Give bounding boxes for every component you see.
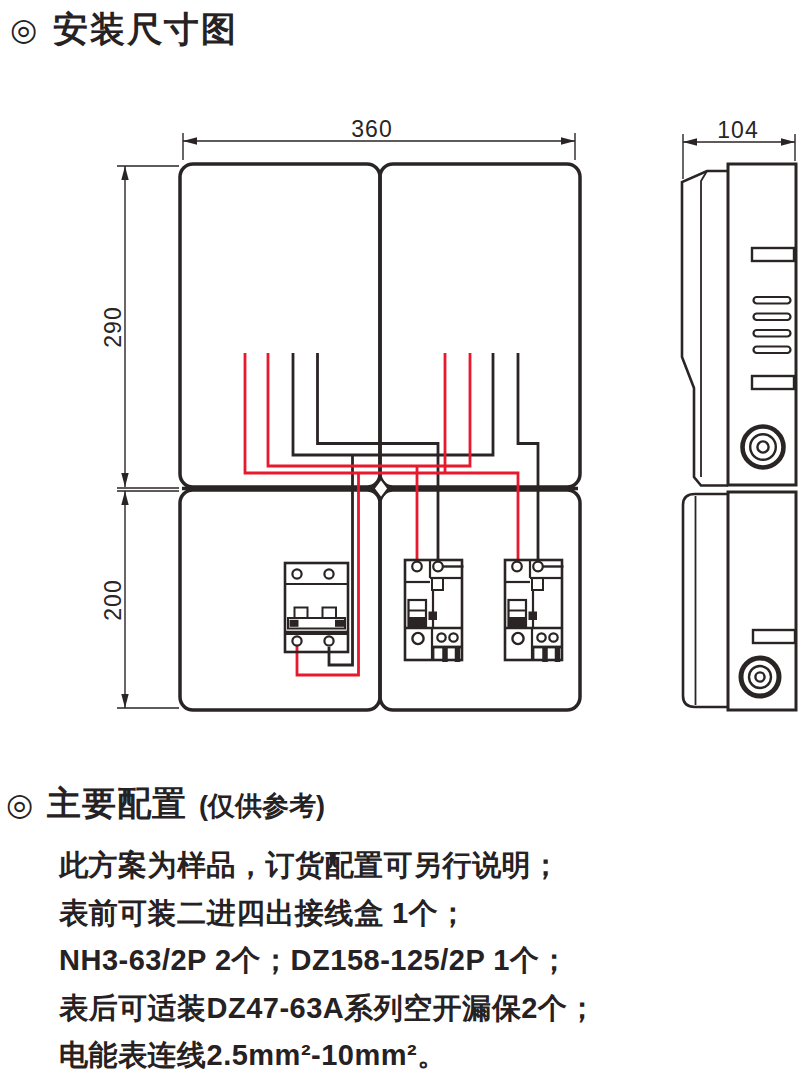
bullseye-icon: ◎ <box>6 789 33 820</box>
dim-upper-height-label: 290 <box>100 306 126 347</box>
config-section-title: 主要配置 <box>47 781 187 827</box>
rcbo-breaker-1 <box>405 560 464 662</box>
rcbo-breaker-2 <box>505 560 564 662</box>
dim-lower-height-label: 200 <box>100 579 126 620</box>
config-line: 此方案为样品，订货配置可另行说明； <box>59 842 779 890</box>
config-line: 表后可适装DZ47-63A系列空开漏保2个； <box>59 985 779 1033</box>
config-section-header: ◎ 主要配置 (仅供参考) <box>6 781 325 827</box>
dim-width-label: 360 <box>351 116 392 142</box>
config-text-block: 此方案为样品，订货配置可另行说明； 表前可装二进四出接线盒 1个； NH3-63… <box>59 842 779 1075</box>
main-breaker-2p <box>285 563 348 652</box>
config-line: NH3-63/2P 2个；DZ158-125/2P 1个； <box>59 937 779 985</box>
dim-depth-label: 104 <box>717 117 758 143</box>
dimension-labels: 360 104 290 200 <box>100 116 759 621</box>
installation-dimension-diagram: 360 104 290 200 <box>0 0 800 765</box>
side-view-enclosure <box>682 164 796 710</box>
config-section-note: (仅供参考) <box>199 788 325 824</box>
config-line: 表前可装二进四出接线盒 1个； <box>59 890 779 938</box>
config-line: 电能表连线2.5mm²-10mm²。 <box>59 1032 779 1075</box>
